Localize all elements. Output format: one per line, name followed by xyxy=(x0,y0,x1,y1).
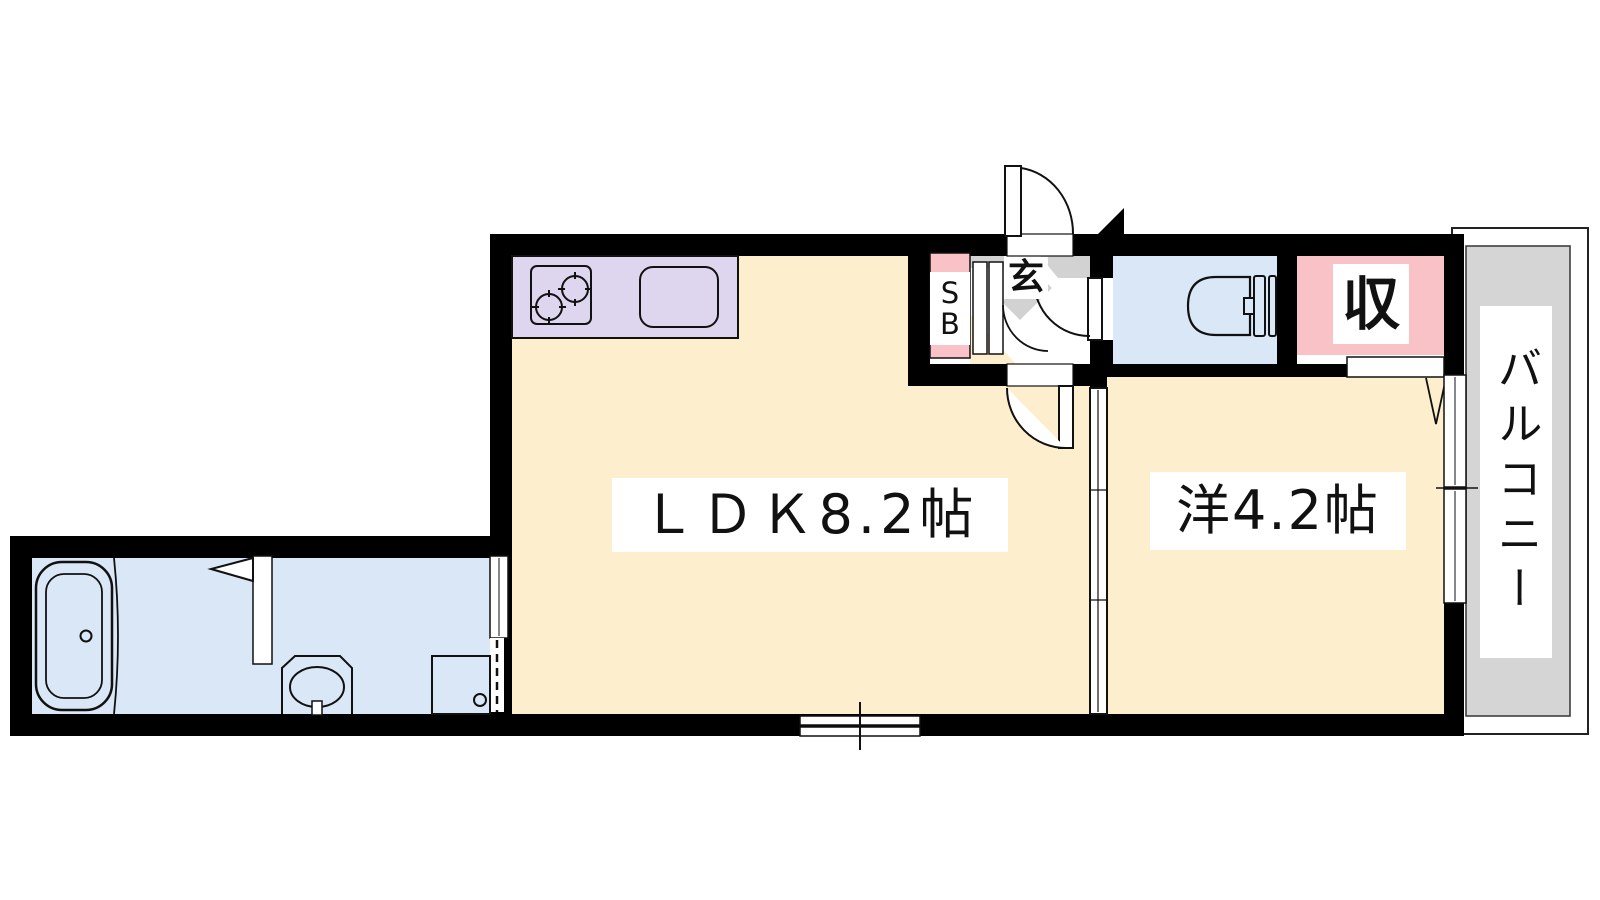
entrance-door-arc xyxy=(1021,168,1073,234)
balcony-label: バルコニー xyxy=(1480,306,1552,658)
ldk-room-label: ＬＤＫ8.2帖 xyxy=(612,478,1008,552)
toilet-seat-notch xyxy=(1244,298,1254,314)
bath-door xyxy=(253,556,272,664)
toilet-door-leaf xyxy=(1088,278,1102,340)
entrance-door-leaf xyxy=(1005,166,1021,236)
wall-wing-left xyxy=(10,536,32,736)
ldk-doorway xyxy=(1007,364,1073,386)
western-room-label: 洋4.2帖 xyxy=(1150,472,1406,550)
shoe-box-label-line2: B xyxy=(940,310,960,339)
wall-right-upper xyxy=(1444,234,1464,375)
floorplan-canvas: ＬＤＫ8.2帖 洋4.2帖 バルコニー 収 玄 S B xyxy=(0,0,1600,900)
wall-wing-top xyxy=(10,536,490,558)
wall-partition-stub xyxy=(1090,364,1107,388)
wall-bottom xyxy=(10,714,1464,736)
entrance-doorway xyxy=(1007,234,1073,256)
kitchen-counter xyxy=(512,256,738,338)
shoe-box-label-line1: S xyxy=(941,279,959,308)
wall-top-right xyxy=(1073,234,1464,256)
entrance-cabinet-panel-1 xyxy=(973,262,987,354)
entrance-cabinet-panel-2 xyxy=(989,262,1003,354)
ldk-door-leaf xyxy=(1059,386,1073,448)
wall-toilet-closet xyxy=(1277,256,1297,364)
floorplan-drawing xyxy=(0,0,1600,900)
washbasin-faucet xyxy=(312,701,322,715)
closet-label: 収 xyxy=(1333,264,1409,344)
entrance-label: 玄 xyxy=(1004,257,1048,299)
closet-door xyxy=(1347,357,1444,377)
shoe-box-label: S B xyxy=(930,272,970,345)
wall-genkan-bottom-left xyxy=(908,364,1007,386)
